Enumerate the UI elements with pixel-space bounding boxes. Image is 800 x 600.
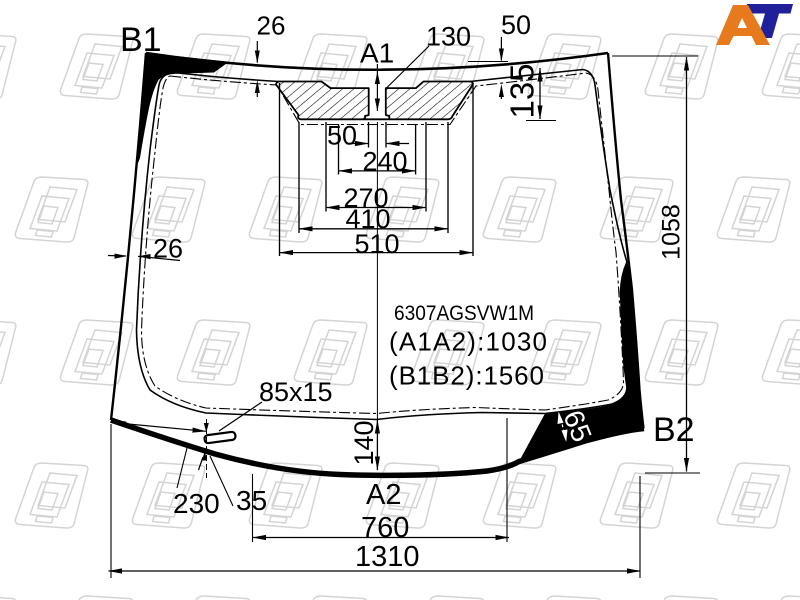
svg-text:85x15: 85x15: [259, 377, 333, 407]
svg-text:B2: B2: [653, 411, 695, 449]
svg-text:(A1A2):1030: (A1A2):1030: [389, 327, 547, 357]
svg-text:50: 50: [501, 10, 531, 40]
svg-text:A1: A1: [360, 38, 394, 69]
svg-text:140: 140: [349, 420, 379, 465]
svg-text:50: 50: [327, 121, 357, 151]
svg-text:510: 510: [354, 229, 399, 259]
svg-text:35: 35: [236, 485, 267, 516]
svg-text:760: 760: [361, 512, 409, 544]
svg-text:135: 135: [504, 63, 541, 118]
svg-text:240: 240: [362, 146, 407, 176]
svg-text:B1: B1: [120, 21, 162, 59]
svg-text:6307AGSVW1M: 6307AGSVW1M: [394, 302, 534, 325]
svg-text:1058: 1058: [658, 204, 686, 260]
svg-text:A2: A2: [366, 479, 401, 511]
svg-text:1310: 1310: [355, 541, 420, 573]
svg-text:130: 130: [426, 21, 471, 51]
svg-text:26: 26: [257, 11, 286, 41]
svg-text:(B1B2):1560: (B1B2):1560: [389, 361, 544, 391]
svg-text:230: 230: [173, 488, 220, 519]
